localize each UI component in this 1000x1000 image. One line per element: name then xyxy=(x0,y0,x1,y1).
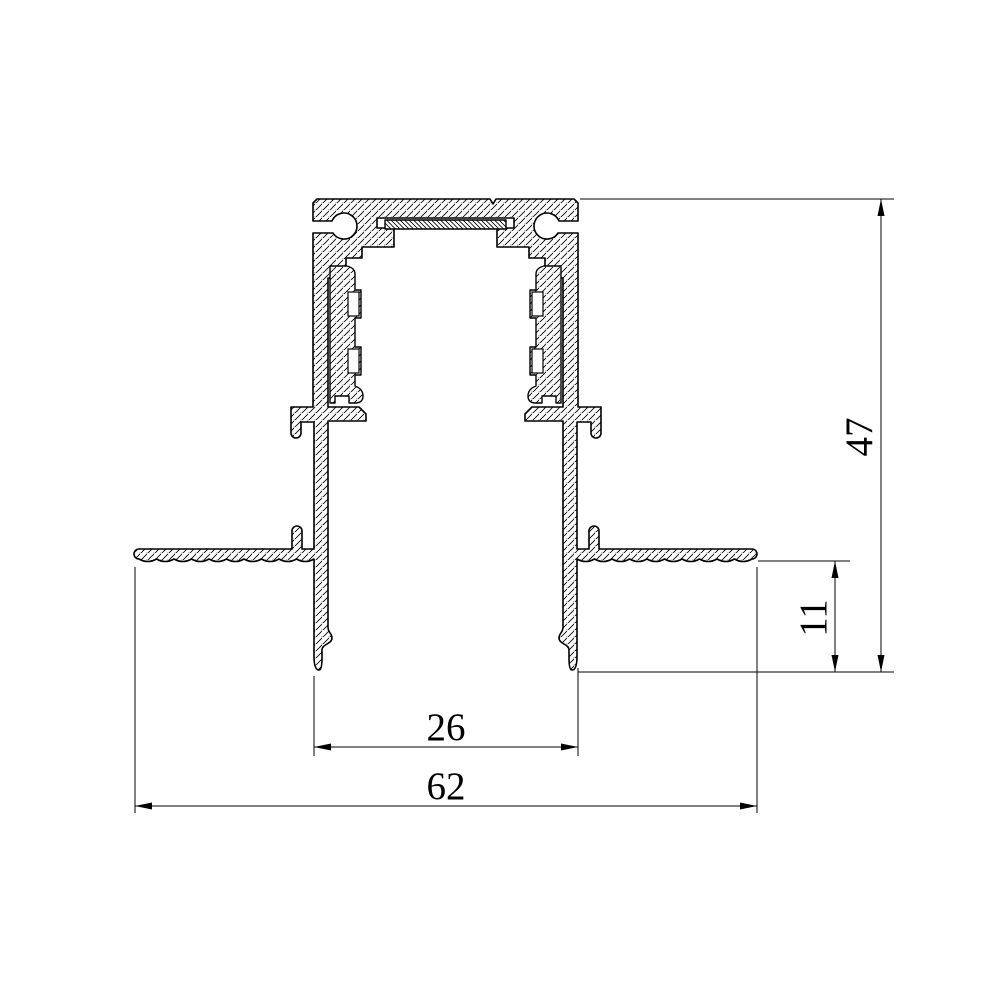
technical-drawing: 47 11 26 62 xyxy=(0,0,1000,1000)
dimension-62-label: 62 xyxy=(427,765,466,808)
conductor-window-left-upper xyxy=(348,292,359,316)
dimension-11-label: 11 xyxy=(792,599,835,637)
conductor-window-right-upper xyxy=(532,292,543,316)
conductor-window-right-lower xyxy=(532,349,543,373)
dimension-47-label: 47 xyxy=(838,418,881,457)
drawing-sheet: 47 11 26 62 xyxy=(0,0,1000,1000)
magnet-strip xyxy=(385,220,506,229)
dimension-26-label: 26 xyxy=(427,706,466,749)
conductor-window-left-lower xyxy=(348,349,359,373)
sheet-background xyxy=(0,0,1000,1000)
